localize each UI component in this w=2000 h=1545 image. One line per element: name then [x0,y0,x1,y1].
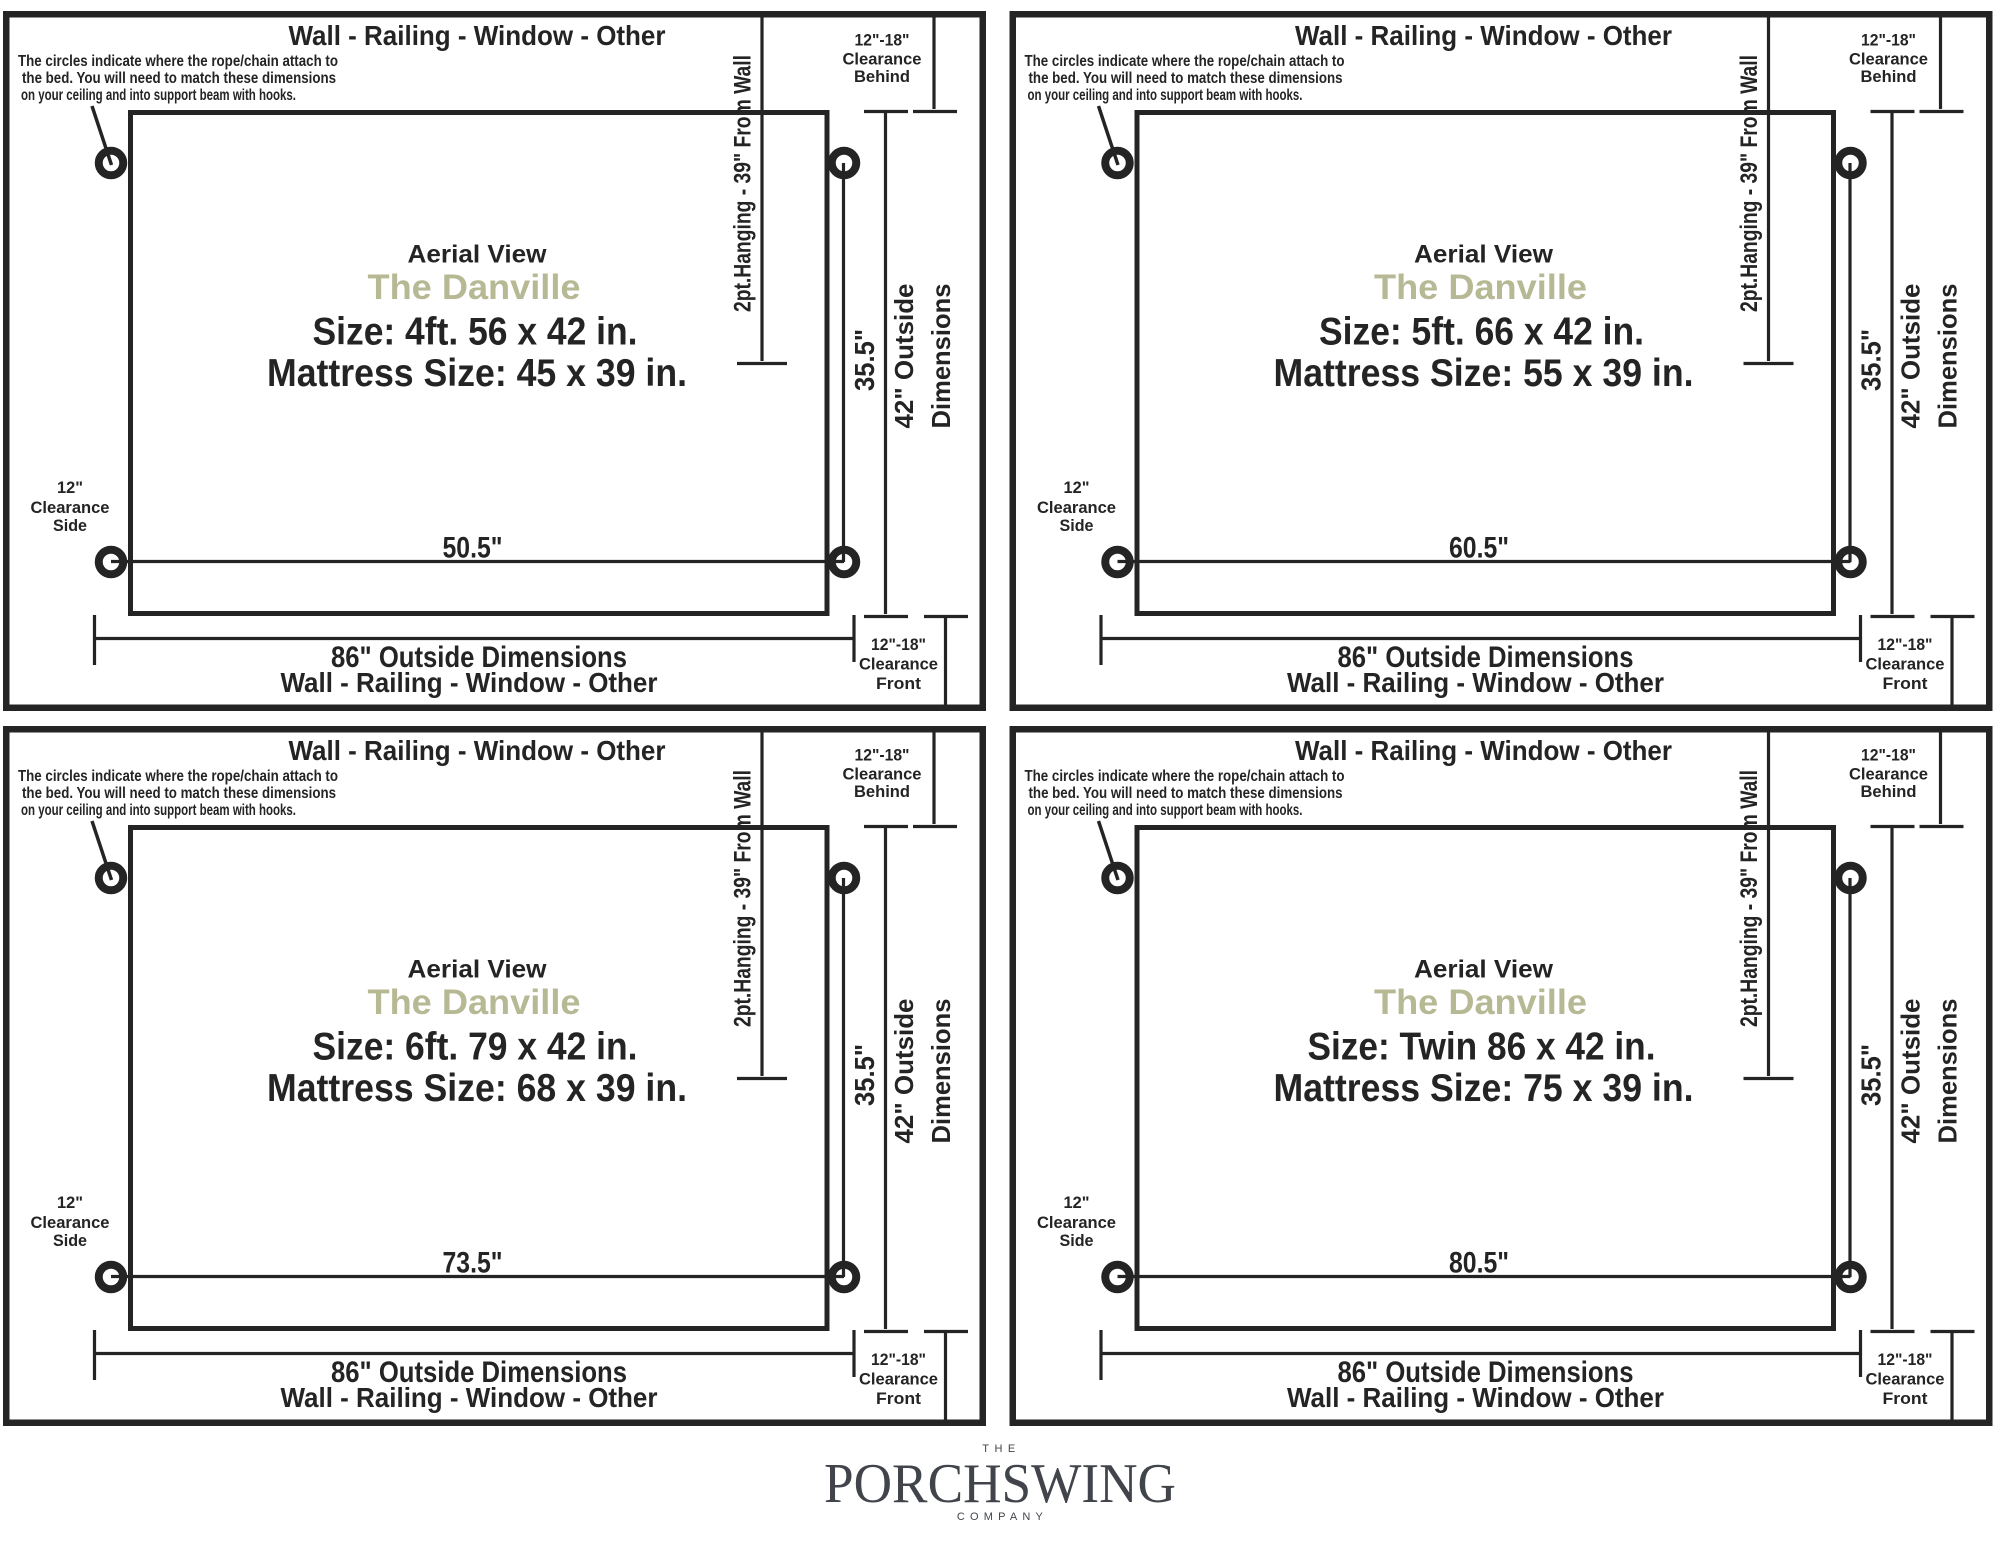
svg-text:Mattress Size: 55 x 39 in.: Mattress Size: 55 x 39 in. [1274,352,1694,395]
svg-text:50.5": 50.5" [443,532,503,565]
svg-text:Size: Twin 86 x 42 in.: Size: Twin 86 x 42 in. [1308,1026,1656,1069]
svg-text:Mattress Size: 68 x 39 in.: Mattress Size: 68 x 39 in. [267,1067,687,1110]
svg-text:The Danville: The Danville [1374,983,1587,1022]
svg-text:PORCHSWING: PORCHSWING [824,1453,1176,1515]
svg-text:Size: 6ft. 79 x 42 in.: Size: 6ft. 79 x 42 in. [313,1026,638,1069]
svg-text:Size: 5ft. 66 x 42 in.: Size: 5ft. 66 x 42 in. [1319,311,1644,354]
svg-text:73.5": 73.5" [443,1247,503,1280]
svg-text:Size: 4ft. 56 x 42 in.: Size: 4ft. 56 x 42 in. [313,311,638,354]
svg-text:The Danville: The Danville [368,983,581,1022]
svg-text:The Danville: The Danville [1374,268,1587,307]
svg-text:60.5": 60.5" [1449,532,1509,565]
svg-text:Mattress Size: 45 x 39 in.: Mattress Size: 45 x 39 in. [267,352,687,395]
svg-text:Mattress Size: 75 x 39 in.: Mattress Size: 75 x 39 in. [1274,1067,1694,1110]
svg-text:The Danville: The Danville [368,268,581,307]
svg-text:80.5": 80.5" [1449,1247,1509,1280]
svg-text:COMPANY: COMPANY [957,1511,1048,1523]
